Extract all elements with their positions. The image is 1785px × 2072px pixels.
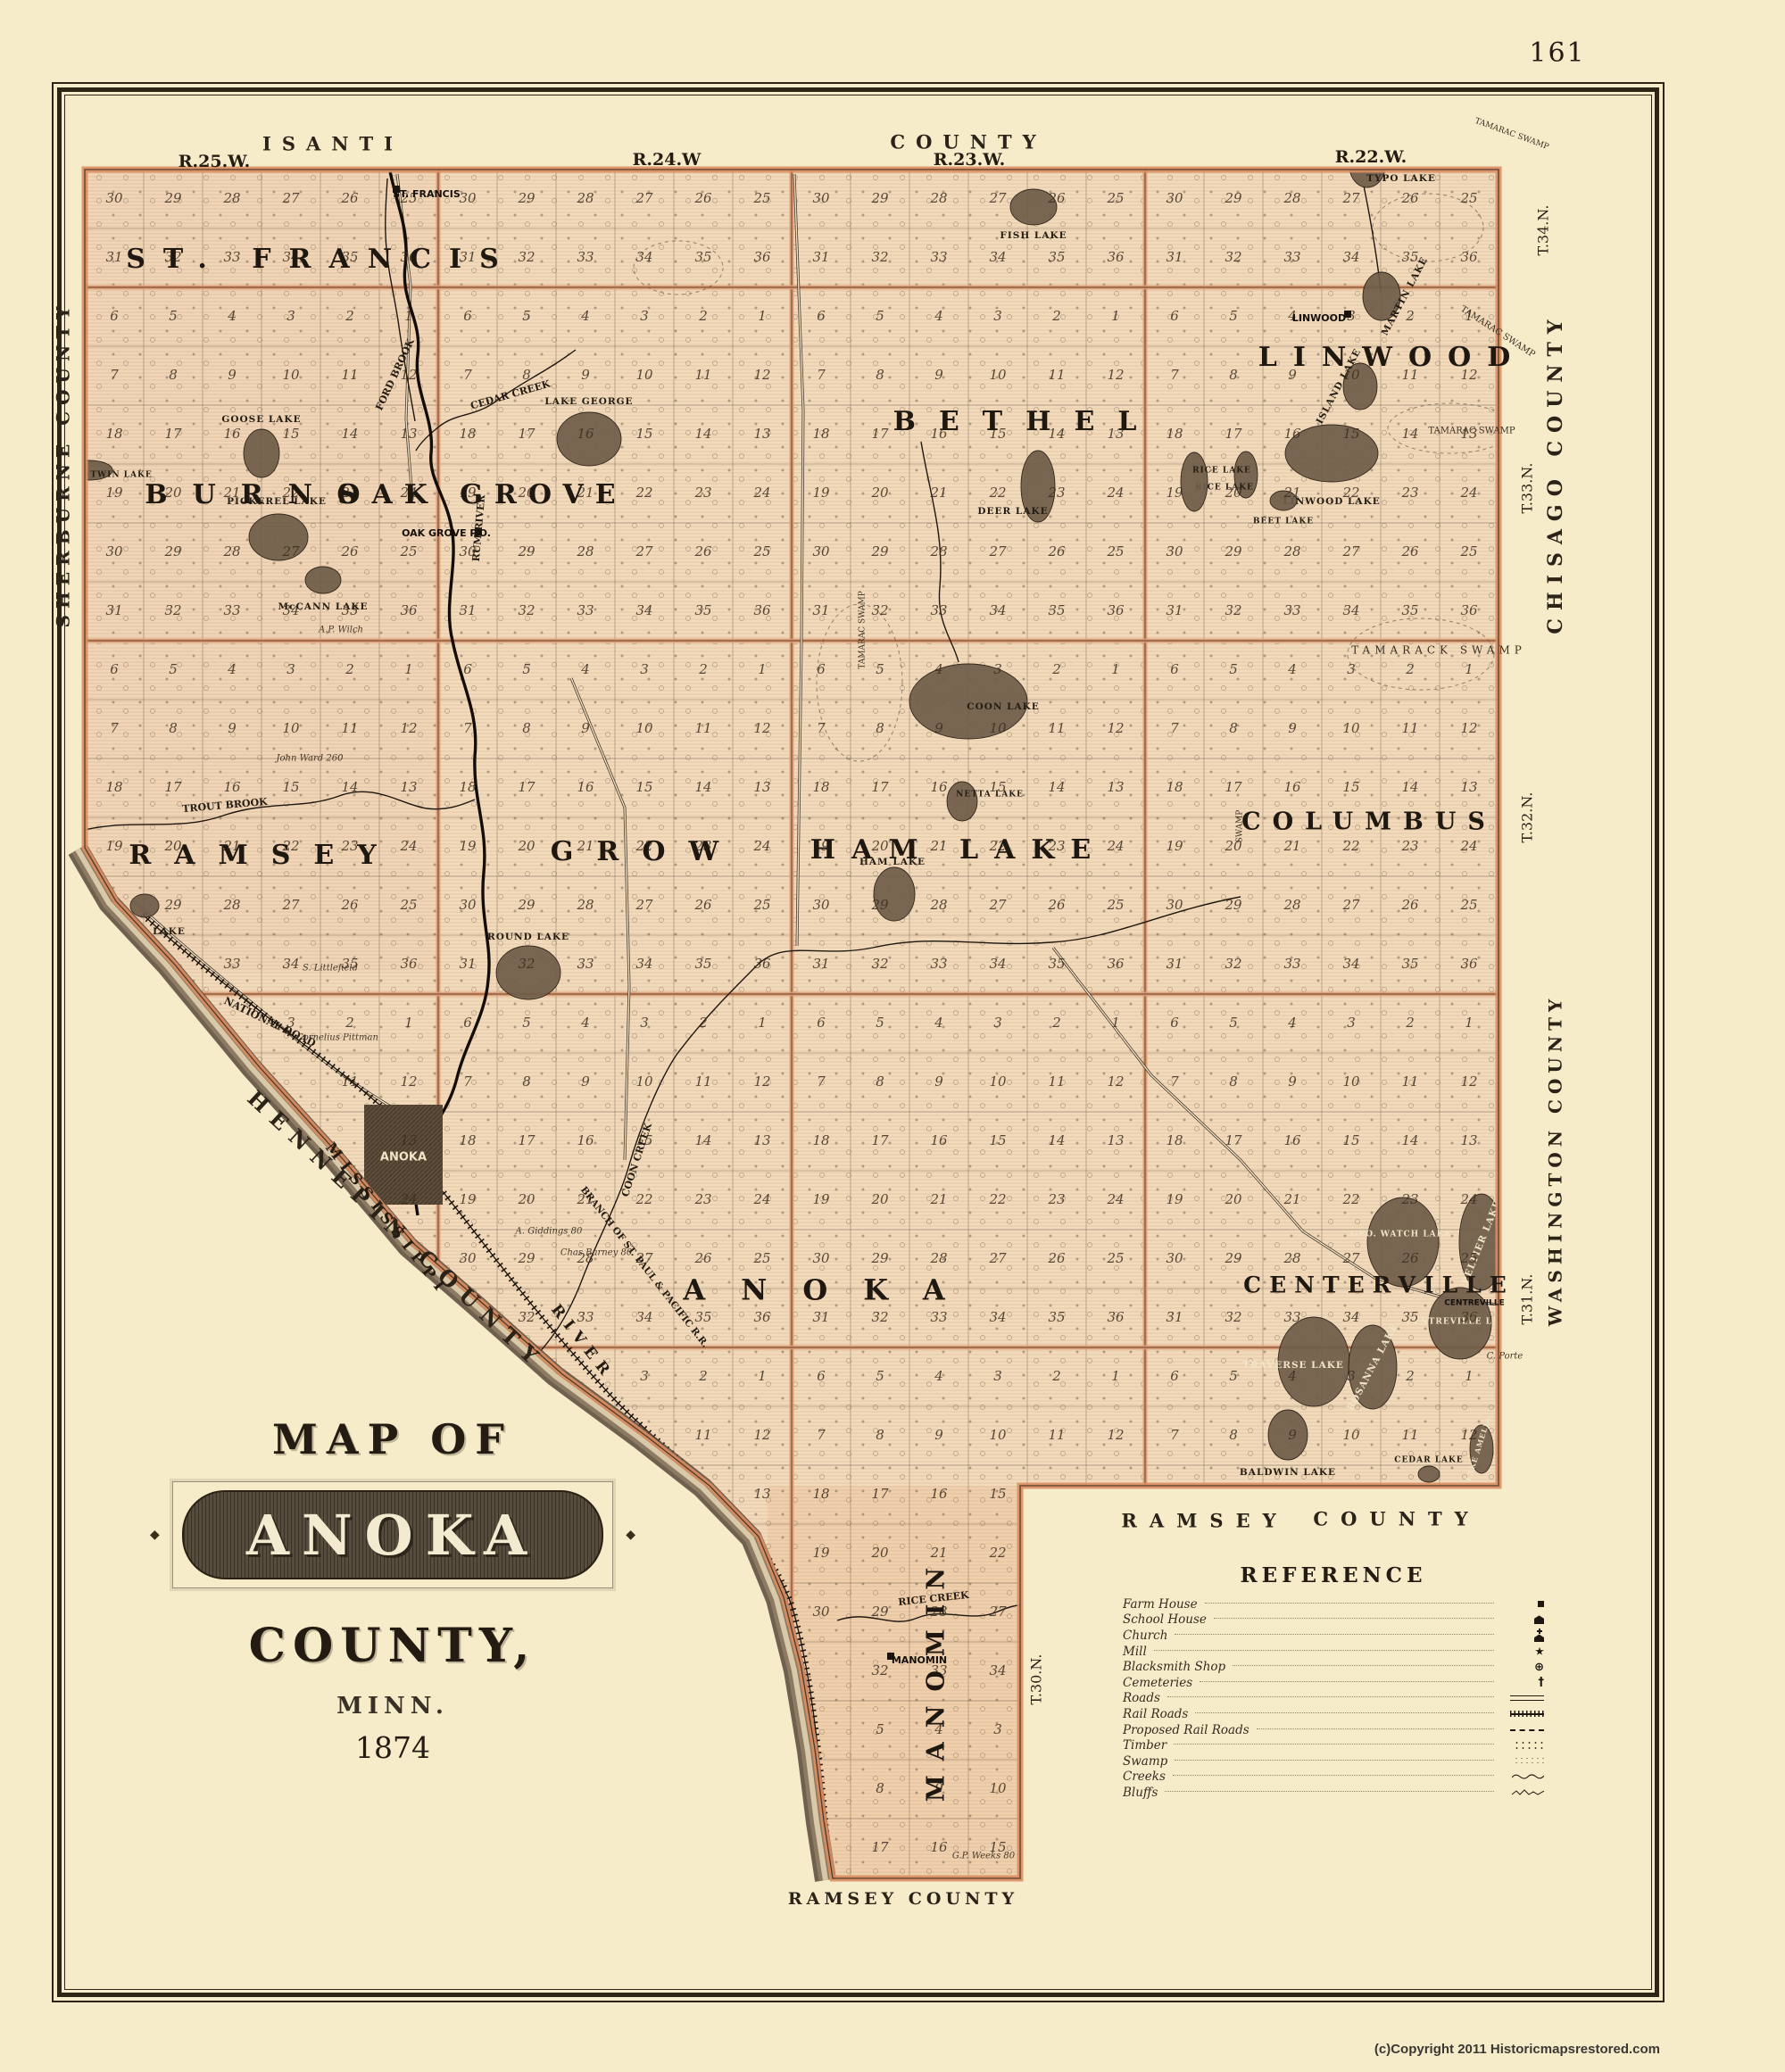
section-number: 18 [459, 1132, 476, 1148]
section-number: 18 [105, 426, 122, 442]
section-number: 36 [753, 249, 771, 265]
section-number: 5 [1229, 661, 1238, 677]
section-number: 25 [1459, 1250, 1477, 1266]
copyright-note: (c)Copyright 2011 Historicmapsrestored.c… [1374, 2042, 1660, 2057]
section-number: 23 [693, 1191, 711, 1207]
section-number: 30 [459, 190, 477, 206]
section-number: 13 [400, 426, 417, 442]
section-number: 1 [1111, 661, 1120, 677]
section-number: 7 [110, 367, 119, 383]
section-number: 35 [1048, 1309, 1065, 1325]
lake [1418, 1466, 1440, 1482]
section-number: 24 [1106, 485, 1124, 501]
section-number: 29 [163, 897, 182, 913]
legend-leader [1165, 1791, 1494, 1792]
section-number: 36 [753, 956, 771, 972]
section-number: 1 [1465, 1368, 1474, 1384]
village-label: MANOMIN [892, 1654, 947, 1666]
section-number: 29 [870, 897, 889, 913]
section-number: 13 [1107, 779, 1124, 795]
section-number: 32 [518, 956, 535, 972]
section-number: 19 [105, 838, 123, 854]
range-label: R.24.W [633, 150, 702, 170]
landowner-label: C. Porte [1487, 1352, 1523, 1362]
section-number: 11 [341, 1073, 358, 1090]
section-number: 4 [934, 308, 943, 324]
section-number: 20 [517, 1191, 535, 1207]
section-number: 10 [989, 1780, 1007, 1796]
section-number: 26 [693, 190, 712, 206]
section-number: 31 [1166, 1309, 1183, 1325]
section-number: 20 [1224, 485, 1242, 501]
section-number: 17 [871, 779, 889, 795]
section-number: 16 [930, 779, 948, 795]
section-number: 25 [399, 897, 417, 913]
section-number: 31 [105, 602, 122, 618]
section-number: 5 [1229, 308, 1238, 324]
section-number: 7 [817, 367, 826, 383]
section-number: 6 [110, 308, 119, 324]
legend-item-symbol-railroad-icon [1501, 1711, 1544, 1717]
section-number: 2 [698, 1368, 708, 1384]
legend-item-symbol-cemetery-icon: † [1501, 1677, 1544, 1688]
section-number: 11 [694, 1427, 711, 1443]
county-edge-label: CHISAGO COUNTY [1544, 311, 1567, 634]
section-number: 23 [1400, 1191, 1418, 1207]
section-number: 27 [635, 190, 653, 206]
section-number: 28 [222, 190, 240, 206]
section-number: 10 [989, 1073, 1007, 1090]
section-number: 19 [1166, 1191, 1183, 1207]
section-number: 1 [404, 308, 413, 324]
section-number: 24 [1459, 1191, 1477, 1207]
section-number: 3 [640, 308, 649, 324]
section-number: 5 [1229, 1368, 1238, 1384]
section-number: 34 [282, 602, 299, 618]
section-number: 22 [988, 1545, 1006, 1561]
legend-item-symbol-creeks-icon [1501, 1772, 1544, 1781]
legend-title: REFERENCE [1123, 1563, 1544, 1587]
section-number: 12 [1107, 367, 1124, 383]
section-number: 9 [581, 1073, 590, 1090]
landowner-label: Chas Barney 80 [560, 1248, 633, 1258]
section-number: 26 [1400, 190, 1419, 206]
cartouche-map-of: MAP OF [152, 1415, 634, 1463]
section-number: 23 [693, 485, 711, 501]
lake [1181, 452, 1208, 511]
section-number: 29 [1224, 190, 1242, 206]
section-number: 18 [812, 779, 829, 795]
section-number: 9 [934, 367, 943, 383]
section-number: 18 [459, 779, 476, 795]
section-number: 6 [817, 308, 826, 324]
section-number: 16 [1283, 779, 1301, 795]
county-edge-label: COUNTY [1313, 1508, 1480, 1530]
section-number: 34 [635, 956, 652, 972]
section-number: 31 [812, 249, 829, 265]
range-label: R.25.W. [178, 152, 250, 171]
section-number: 10 [1342, 1427, 1360, 1443]
township-name-label: COLUMBUS [1241, 808, 1497, 836]
swamp-label: TAMARAC SWAMP [859, 591, 868, 669]
section-number: 33 [1283, 249, 1300, 265]
section-number: 35 [1048, 956, 1065, 972]
section-number: 16 [930, 1486, 948, 1502]
section-number: 8 [876, 367, 884, 383]
section-number: 26 [1047, 1250, 1066, 1266]
section-number: 28 [929, 897, 947, 913]
section-number: 29 [163, 543, 182, 559]
section-number: 6 [463, 661, 472, 677]
section-number: 31 [812, 956, 829, 972]
section-number: 12 [1460, 1427, 1477, 1443]
section-number: 2 [345, 1015, 354, 1031]
section-number: 27 [988, 190, 1007, 206]
legend-item-symbol-school_house-icon [1501, 1615, 1544, 1624]
lake [244, 429, 279, 477]
section-number: 20 [517, 838, 535, 854]
section-number: 33 [577, 1309, 594, 1325]
legend-item-symbol-farm_house-icon [1501, 1601, 1544, 1607]
section-number: 1 [758, 1015, 767, 1031]
lake-label: TYPO LAKE [1366, 173, 1436, 184]
legend-item-label: Roads [1123, 1691, 1160, 1705]
section-number: 24 [752, 1191, 770, 1207]
section-number: 26 [1400, 543, 1419, 559]
section-number: 32 [871, 249, 888, 265]
section-number: 25 [752, 543, 770, 559]
section-number: 29 [870, 543, 889, 559]
section-number: 29 [870, 1250, 889, 1266]
section-number: 8 [522, 720, 531, 736]
section-number: 30 [1166, 543, 1183, 559]
section-number: 26 [693, 1250, 712, 1266]
section-number: 8 [169, 720, 178, 736]
section-number: 32 [1225, 1309, 1241, 1325]
section-number: 10 [635, 367, 653, 383]
section-number: 32 [518, 602, 535, 618]
section-number: 10 [989, 720, 1007, 736]
legend-item-symbol-church-icon [1501, 1629, 1544, 1642]
section-number: 32 [164, 602, 181, 618]
section-number: 33 [930, 956, 947, 972]
legend-row: Mill [1123, 1644, 1544, 1660]
legend-item-label: Church [1123, 1629, 1167, 1643]
section-number: 35 [694, 249, 711, 265]
legend-leader [1205, 1603, 1494, 1604]
lake-label: TWIN LAKE [90, 471, 152, 480]
section-number: 24 [1106, 838, 1124, 854]
section-number: 16 [577, 426, 594, 442]
section-number: 14 [341, 779, 358, 795]
section-number: 23 [1400, 485, 1418, 501]
section-number: 27 [1341, 897, 1360, 913]
section-number: 2 [698, 1015, 708, 1031]
section-number: 4 [934, 1368, 943, 1384]
section-number: 36 [1107, 249, 1125, 265]
section-number: 18 [812, 1132, 829, 1148]
section-number: 19 [1166, 485, 1183, 501]
section-number: 25 [1459, 190, 1477, 206]
section-number: 30 [459, 1250, 477, 1266]
township-name-label: ANOKA [682, 1273, 980, 1307]
section-number: 4 [1287, 1015, 1297, 1031]
section-number: 11 [694, 367, 711, 383]
section-number: 17 [871, 1486, 889, 1502]
legend-item-symbol-timber-icon [1501, 1740, 1544, 1751]
reference-legend: REFERENCE Farm HouseSchool HouseChurchMi… [1123, 1563, 1544, 1801]
section-number: 15 [282, 426, 299, 442]
section-number: 9 [1288, 1073, 1297, 1090]
section-number: 10 [282, 720, 300, 736]
section-number: 10 [282, 367, 300, 383]
section-number: 32 [1225, 602, 1241, 618]
section-number: 5 [876, 661, 884, 677]
section-number: 12 [753, 1427, 770, 1443]
section-number: 14 [1401, 1132, 1418, 1148]
section-number: 36 [1107, 602, 1125, 618]
section-number: 2 [698, 308, 708, 324]
section-number: 35 [1401, 1309, 1418, 1325]
section-number: 15 [989, 1132, 1006, 1148]
section-number: 17 [164, 779, 182, 795]
section-number: 21 [1283, 838, 1300, 854]
section-number: 25 [1106, 1250, 1124, 1266]
section-number: 7 [1170, 1427, 1179, 1443]
township-name-label: ST. FRANCIS [126, 244, 517, 275]
county-edge-label: RAMSEY COUNTY [788, 1889, 1018, 1909]
legend-row: Rail Roads [1123, 1706, 1544, 1722]
section-number: 13 [753, 1486, 770, 1502]
lake-label: GOOSE LAKE [221, 414, 301, 425]
village-label: OAK GROVE P.O. [402, 527, 491, 539]
section-number: 35 [1401, 249, 1418, 265]
section-number: 18 [812, 1486, 829, 1502]
section-number: 4 [934, 1015, 943, 1031]
section-number: 31 [459, 956, 476, 972]
lake [874, 867, 915, 921]
section-number: 8 [169, 367, 178, 383]
section-number: 29 [870, 190, 889, 206]
section-number: 17 [1225, 779, 1242, 795]
section-number: 8 [1229, 367, 1238, 383]
section-number: 3 [640, 1015, 649, 1031]
section-number: 20 [870, 1191, 889, 1207]
section-number: 27 [281, 897, 300, 913]
section-number: 22 [635, 485, 652, 501]
section-number: 29 [1224, 897, 1242, 913]
section-number: 29 [517, 543, 535, 559]
section-number: 29 [870, 1604, 889, 1620]
section-number: 13 [400, 1132, 417, 1148]
section-number: 16 [930, 1132, 948, 1148]
section-number: 30 [1166, 897, 1183, 913]
legend-leader [1214, 1618, 1494, 1619]
section-number: 14 [1048, 779, 1065, 795]
swamp-label: SWAMP [1236, 810, 1245, 843]
section-number: 3 [993, 308, 1002, 324]
section-number: 3 [286, 661, 295, 677]
section-number: 24 [752, 485, 770, 501]
section-number: 5 [169, 661, 178, 677]
section-number: 8 [1229, 1427, 1238, 1443]
section-number: 25 [1106, 543, 1124, 559]
section-number: 28 [222, 897, 240, 913]
section-number: 23 [1400, 838, 1418, 854]
section-number: 12 [753, 367, 770, 383]
section-number: 5 [522, 308, 531, 324]
section-number: 27 [281, 190, 300, 206]
section-number: 22 [635, 1191, 652, 1207]
section-number: 5 [876, 1015, 884, 1031]
range-label: R.23.W. [934, 150, 1005, 170]
section-number: 17 [518, 1132, 535, 1148]
section-number: 22 [988, 1191, 1006, 1207]
range-label: R.22.W. [1335, 147, 1407, 167]
township-name-label: CENTERVILLE [1243, 1272, 1515, 1298]
section-number: 12 [1460, 720, 1477, 736]
section-number: 13 [753, 1132, 770, 1148]
township-name-label: LINWOOD [1258, 342, 1527, 373]
section-number: 23 [1047, 485, 1065, 501]
section-number: 19 [459, 1191, 477, 1207]
township-row-label: T.31.N. [1519, 1274, 1536, 1325]
lake-label: RICE LAKE [1192, 467, 1251, 476]
section-number: 11 [694, 1073, 711, 1090]
section-number: 11 [341, 367, 358, 383]
cartouche-banner-frame: ANOKA [172, 1481, 613, 1588]
section-number: 24 [752, 838, 770, 854]
section-number: 28 [1283, 190, 1300, 206]
section-number: 8 [522, 367, 531, 383]
section-number: 34 [282, 956, 299, 972]
section-number: 21 [1283, 485, 1300, 501]
section-number: 7 [110, 720, 119, 736]
section-number: 3 [993, 661, 1002, 677]
section-number: 14 [694, 779, 711, 795]
section-number: 3 [1347, 1368, 1356, 1384]
section-number: 1 [404, 1015, 413, 1031]
section-number: 27 [988, 897, 1007, 913]
section-number: 30 [812, 1604, 830, 1620]
legend-row: Swamp [1123, 1753, 1544, 1769]
section-number: 31 [459, 602, 476, 618]
section-number: 13 [400, 779, 417, 795]
section-number: 36 [1107, 956, 1125, 972]
section-number: 11 [1048, 367, 1065, 383]
section-number: 25 [1459, 897, 1477, 913]
section-number: 19 [1166, 838, 1183, 854]
section-number: 6 [463, 308, 472, 324]
legend-item-label: Proposed Rail Roads [1123, 1723, 1249, 1737]
legend-item-symbol-proposed_rr-icon [1501, 1729, 1544, 1731]
section-number: 18 [1166, 779, 1183, 795]
section-number: 6 [463, 1015, 472, 1031]
swamp-label: TAMARACK SWAMP [1351, 644, 1526, 657]
section-number: 15 [989, 779, 1006, 795]
section-number: 29 [163, 190, 182, 206]
landowner-label: G.P. Weeks 80 [952, 1852, 1016, 1861]
section-number: 6 [1170, 1368, 1179, 1384]
section-number: 7 [817, 1073, 826, 1090]
section-number: 8 [876, 1427, 884, 1443]
section-number: 35 [341, 602, 358, 618]
section-number: 4 [227, 308, 237, 324]
section-number: 25 [1459, 543, 1477, 559]
title-cartouche: MAP OF ANOKA COUNTY, MINN. 1874 [152, 1403, 634, 1765]
section-number: 30 [459, 897, 477, 913]
section-number: 7 [463, 720, 472, 736]
section-number: 26 [1400, 897, 1419, 913]
section-number: 2 [1051, 661, 1061, 677]
section-number: 2 [1405, 661, 1415, 677]
section-number: 30 [812, 190, 830, 206]
section-number: 36 [1107, 1309, 1125, 1325]
township-row-label: T.34.N. [1535, 205, 1552, 256]
section-number: 19 [812, 1545, 830, 1561]
section-number: 25 [752, 897, 770, 913]
section-number: 12 [400, 1073, 417, 1090]
section-number: 16 [930, 1839, 948, 1855]
section-number: 22 [988, 485, 1006, 501]
section-number: 35 [694, 956, 711, 972]
landowner-label: John Ward 260 [275, 754, 345, 764]
section-number: 4 [1287, 661, 1297, 677]
section-number: 1 [758, 661, 767, 677]
section-number: 11 [341, 720, 358, 736]
section-number: 4 [1287, 1368, 1297, 1384]
section-number: 36 [400, 956, 418, 972]
section-number: 15 [989, 1486, 1006, 1502]
section-number: 21 [929, 1191, 947, 1207]
landowner-label: Cornelius Pittman [296, 1033, 378, 1043]
legend-row: School House [1123, 1612, 1544, 1629]
section-number: 8 [876, 720, 884, 736]
section-number: 31 [812, 1309, 829, 1325]
legend-leader [1195, 1712, 1494, 1713]
section-number: 18 [459, 426, 476, 442]
legend-leader [1174, 1744, 1494, 1745]
section-number: 26 [1400, 1250, 1419, 1266]
section-number: 33 [1283, 956, 1300, 972]
section-number: 5 [522, 1015, 531, 1031]
section-number: 32 [871, 956, 888, 972]
section-number: 16 [1283, 426, 1301, 442]
legend-item-label: Bluffs [1123, 1786, 1158, 1800]
township-name-label: RAMSEY [129, 840, 399, 871]
section-number: 32 [1225, 249, 1241, 265]
section-number: 33 [1283, 1309, 1300, 1325]
township-row-label: T.32.N. [1519, 792, 1536, 843]
section-number: 13 [1460, 779, 1477, 795]
lake-label: GEO. WATCH LAKE [1351, 1231, 1452, 1239]
legend-row: Proposed Rail Roads [1123, 1722, 1544, 1738]
legend-leader [1233, 1665, 1494, 1666]
section-number: 15 [1342, 779, 1359, 795]
legend-item-label: Mill [1123, 1645, 1147, 1659]
section-number: 17 [518, 426, 535, 442]
section-number: 7 [817, 720, 826, 736]
section-number: 35 [694, 602, 711, 618]
section-number: 5 [169, 308, 178, 324]
section-number: 20 [1224, 1191, 1242, 1207]
section-number: 25 [1106, 190, 1124, 206]
section-number: 9 [1288, 720, 1297, 736]
section-number: 30 [1166, 190, 1183, 206]
section-number: 5 [876, 1368, 884, 1384]
lake-label: BEET LAKE [1253, 518, 1314, 526]
section-number: 28 [222, 543, 240, 559]
